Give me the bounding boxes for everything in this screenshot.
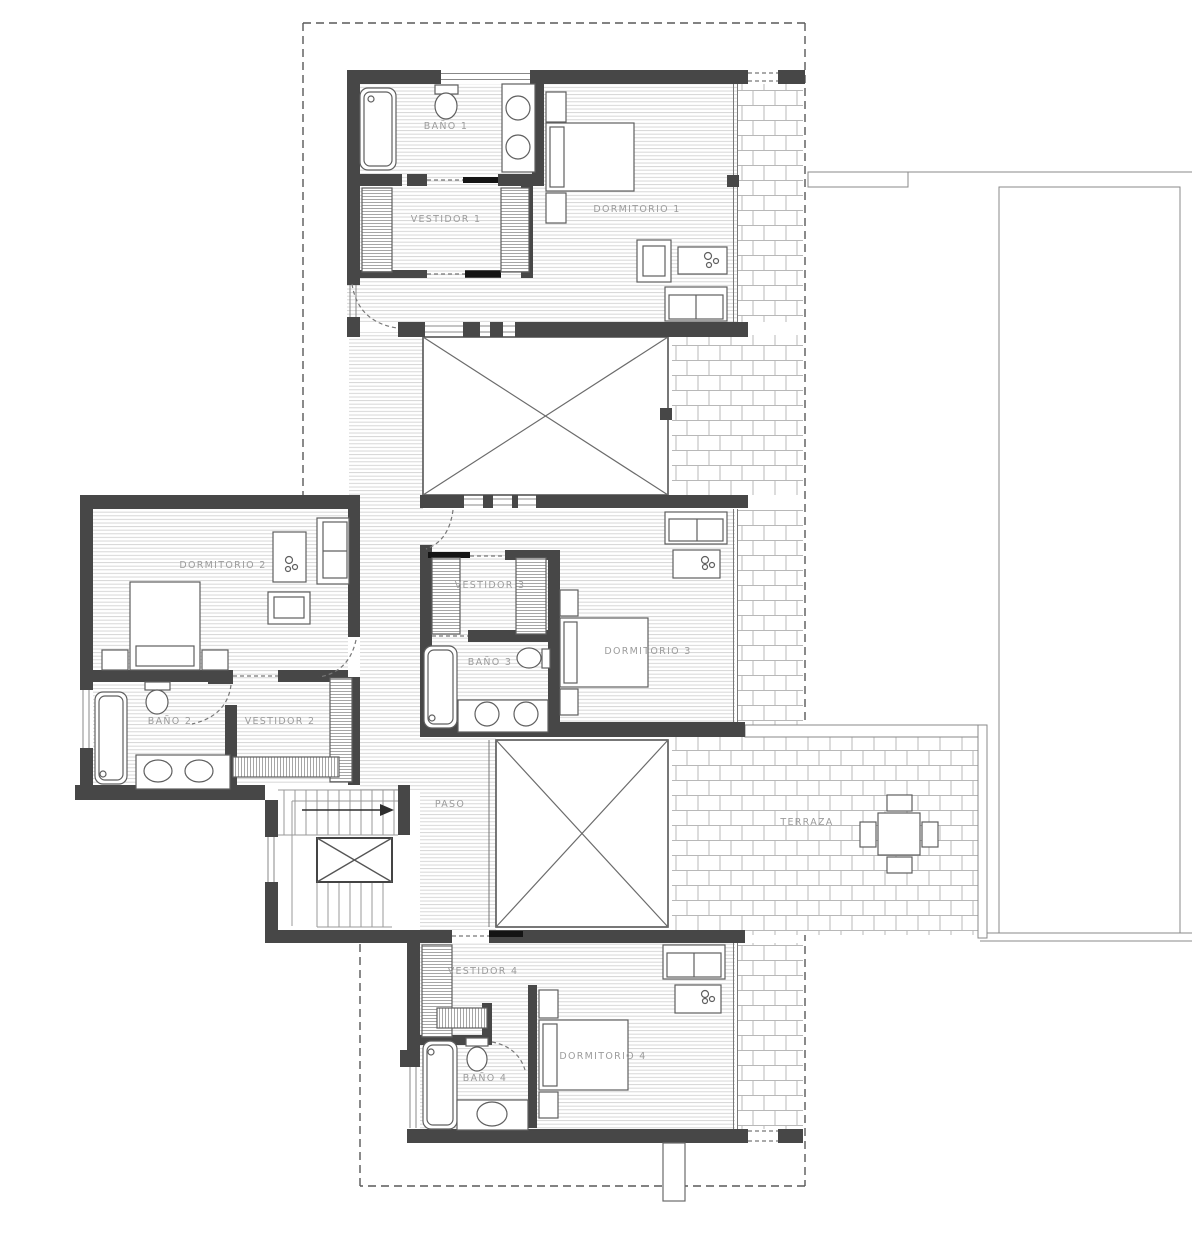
room-label-bano-1: BAÑO 1	[424, 121, 468, 132]
room-label-bano-3: BAÑO 3	[468, 657, 512, 668]
room-label-terraza: TERRAZA	[779, 817, 833, 828]
room-label-bano-4: BAÑO 4	[463, 1073, 507, 1084]
room-label-bano-2: BAÑO 2	[148, 716, 192, 727]
room-label-vestidor-4: VESTIDOR 4	[448, 966, 519, 977]
void-2-double-height	[489, 740, 668, 927]
room-label-vestidor-1: VESTIDOR 1	[411, 214, 482, 225]
chimney-outline	[663, 1143, 685, 1201]
floor-plan-canvas: BAÑO 1 VESTIDOR 1 DORMITORIO 1 DORMITORI…	[0, 0, 1192, 1248]
room-label-dormitorio-1: DORMITORIO 1	[593, 204, 680, 215]
floor-plan-drawing: BAÑO 1 VESTIDOR 1 DORMITORIO 1 DORMITORI…	[0, 0, 1192, 1248]
void-1-double-height	[423, 337, 668, 495]
room-label-vestidor-3: VESTIDOR 3	[455, 580, 526, 591]
room-label-vestidor-2: VESTIDOR 2	[245, 716, 316, 727]
room-label-dormitorio-2: DORMITORIO 2	[179, 560, 266, 571]
room-label-paso: PASO	[435, 799, 465, 810]
room-label-dormitorio-4: DORMITORIO 4	[559, 1051, 646, 1062]
room-label-dormitorio-3: DORMITORIO 3	[604, 646, 691, 657]
